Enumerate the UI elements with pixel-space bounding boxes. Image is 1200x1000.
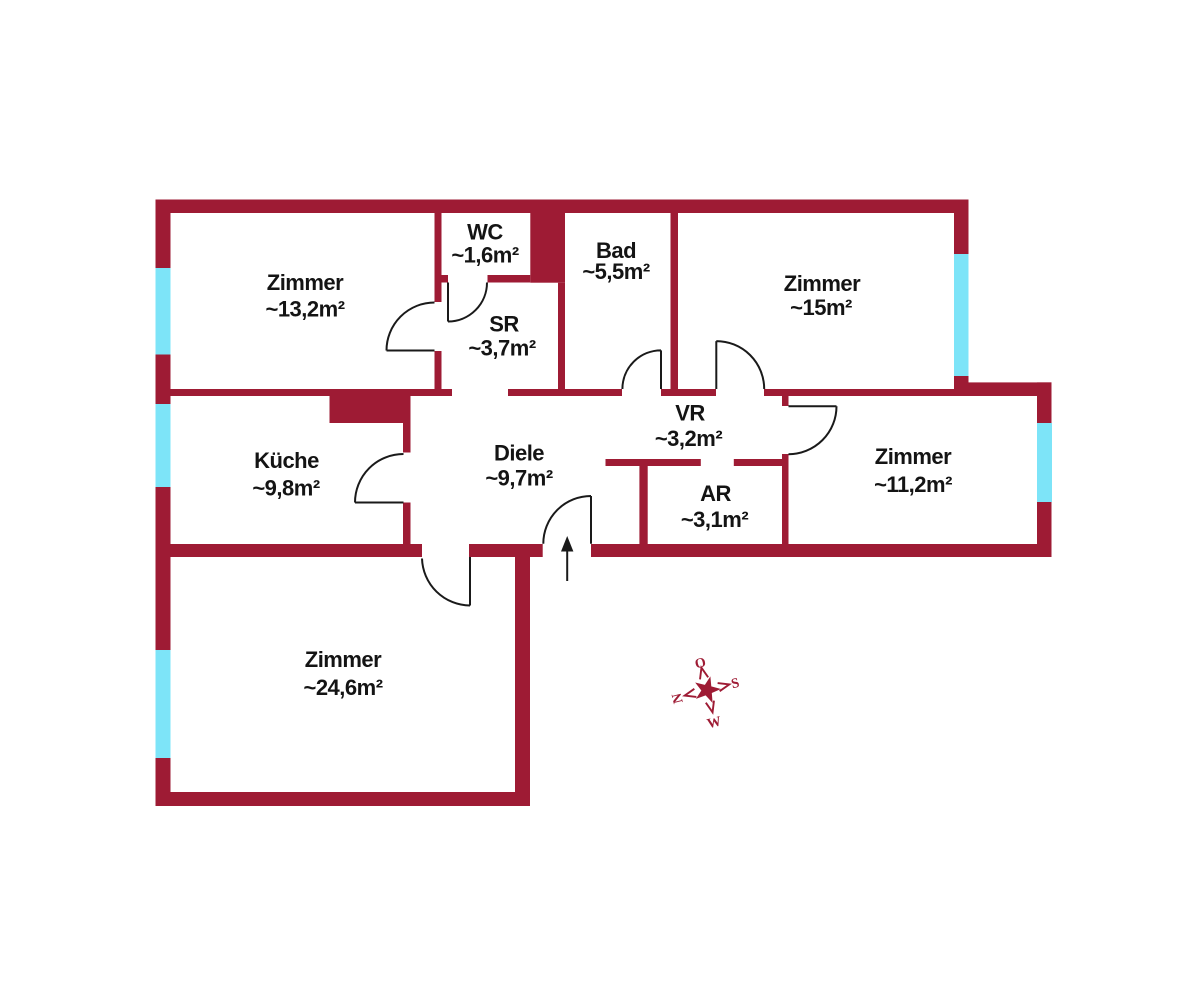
svg-text:~5,5m²: ~5,5m² — [582, 259, 649, 284]
svg-text:~15m²: ~15m² — [790, 295, 852, 320]
svg-text:~1,6m²: ~1,6m² — [451, 243, 518, 268]
svg-text:WC: WC — [467, 220, 503, 245]
svg-text:~3,1m²: ~3,1m² — [681, 507, 748, 532]
svg-text:~13,2m²: ~13,2m² — [265, 297, 344, 322]
svg-text:Zimmer: Zimmer — [875, 444, 952, 469]
svg-text:~11,2m²: ~11,2m² — [874, 472, 952, 497]
svg-text:Diele: Diele — [494, 441, 544, 466]
svg-text:Zimmer: Zimmer — [305, 647, 382, 672]
svg-text:Zimmer: Zimmer — [784, 271, 861, 296]
svg-text:SR: SR — [489, 312, 519, 337]
svg-text:~24,6m²: ~24,6m² — [303, 675, 382, 700]
svg-text:~3,2m²: ~3,2m² — [655, 426, 722, 451]
svg-text:~9,8m²: ~9,8m² — [252, 476, 319, 501]
svg-text:AR: AR — [700, 481, 731, 506]
svg-text:VR: VR — [675, 401, 705, 426]
svg-text:~3,7m²: ~3,7m² — [468, 336, 535, 361]
svg-text:~9,7m²: ~9,7m² — [485, 466, 552, 491]
svg-text:Küche: Küche — [254, 448, 319, 473]
svg-text:Zimmer: Zimmer — [267, 270, 344, 295]
